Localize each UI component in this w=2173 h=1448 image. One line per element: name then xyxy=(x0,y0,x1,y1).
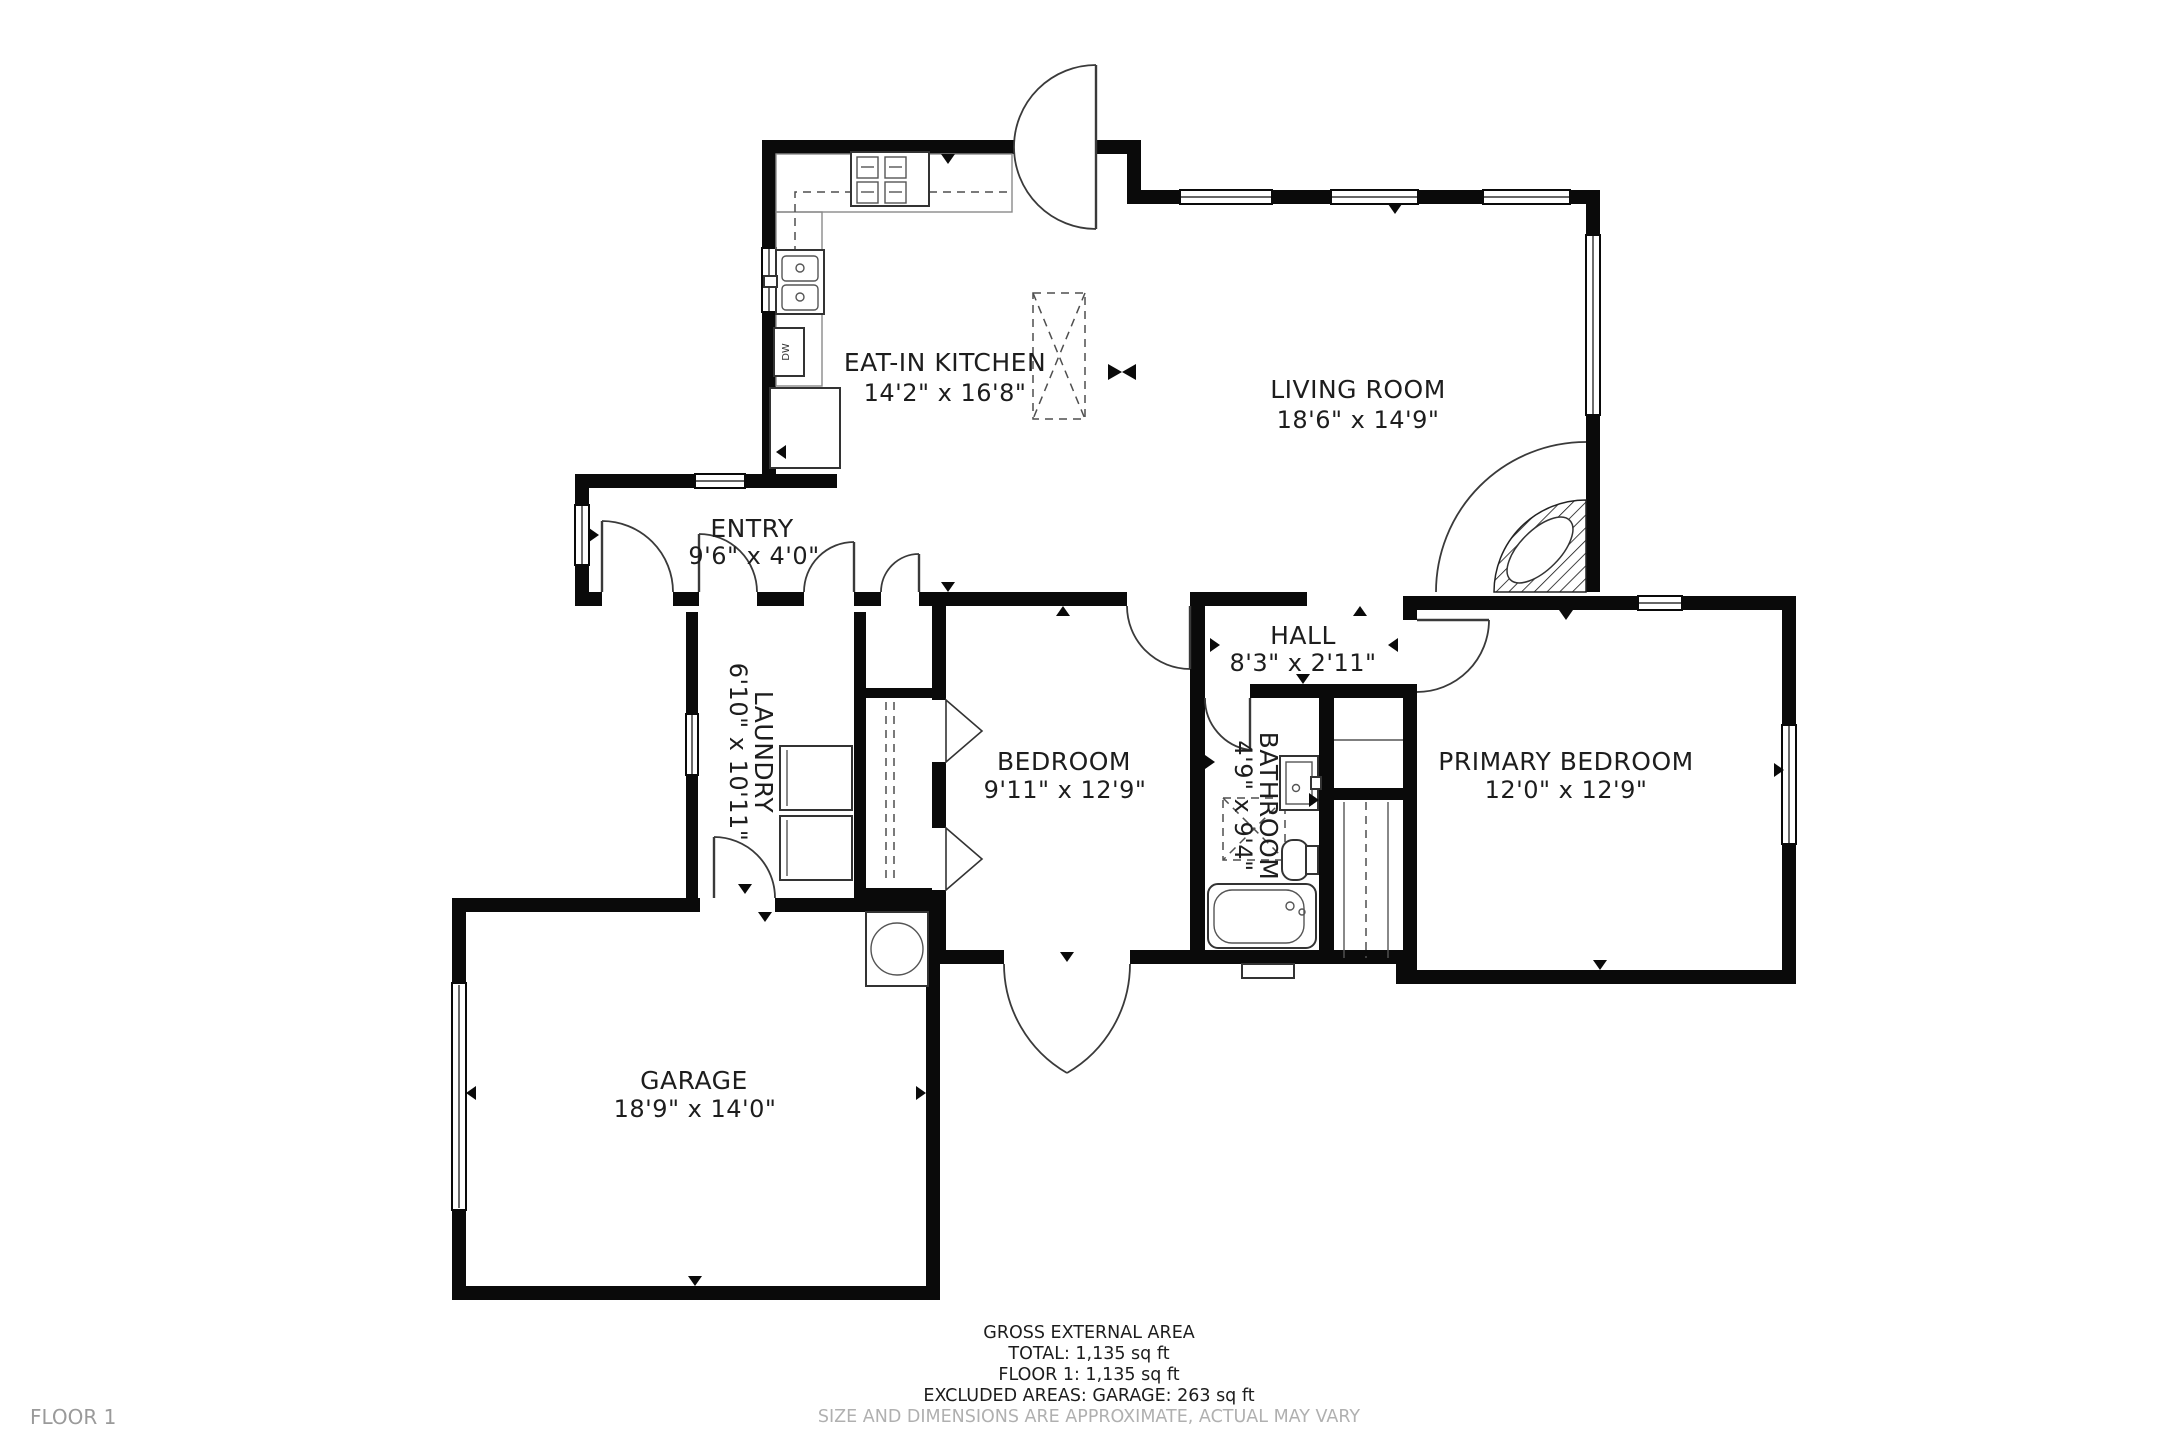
bifold-door-icon xyxy=(946,828,982,890)
room-dimensions: 12'0" x 12'9" xyxy=(1485,776,1648,804)
window xyxy=(1483,190,1570,204)
kitchen-fixtures: DW xyxy=(764,152,1136,468)
garage-door xyxy=(452,983,466,1210)
room-label: EAT-IN KITCHEN xyxy=(844,348,1046,377)
bathtub-icon xyxy=(1208,884,1316,948)
floor-plan-canvas: DW xyxy=(0,0,2173,1448)
room-label: HALL xyxy=(1270,621,1336,650)
door-swing xyxy=(602,521,673,592)
room-dimensions: 6'10" x 10'11" xyxy=(724,663,752,842)
room-eat-in-kitchen: EAT-IN KITCHEN 14'2" x 16'8" xyxy=(844,348,1046,407)
window xyxy=(1180,190,1272,204)
room-label: BATHROOM xyxy=(1254,732,1283,881)
floor-tag: FLOOR 1 xyxy=(30,1405,116,1429)
door-swing xyxy=(881,554,919,592)
svg-text:DW: DW xyxy=(781,343,792,361)
window xyxy=(575,505,589,565)
room-dimensions: 8'3" x 2'11" xyxy=(1229,649,1376,677)
french-doors xyxy=(1004,964,1130,1073)
room-label: GARAGE xyxy=(640,1066,748,1095)
room-dimensions: 4'9" x 9'4" xyxy=(1229,740,1257,871)
room-dimensions: 18'9" x 14'0" xyxy=(614,1095,777,1123)
window xyxy=(686,714,698,775)
room-laundry: LAUNDRY 6'10" x 10'11" xyxy=(724,663,778,842)
room-living-room: LIVING ROOM 18'6" x 14'9" xyxy=(1270,375,1446,434)
dishwasher-icon: DW xyxy=(774,328,804,376)
room-garage: GARAGE 18'9" x 14'0" xyxy=(614,1066,777,1123)
room-hall: HALL 8'3" x 2'11" xyxy=(1229,621,1376,677)
room-label: LIVING ROOM xyxy=(1270,375,1446,404)
room-dimensions: 14'2" x 16'8" xyxy=(864,379,1027,407)
windows xyxy=(452,190,1796,1210)
stove-icon xyxy=(851,152,929,206)
disclaimer: SIZE AND DIMENSIONS ARE APPROXIMATE, ACT… xyxy=(818,1407,1361,1427)
washer-icon xyxy=(780,746,852,810)
area-summary: GROSS EXTERNAL AREA TOTAL: 1,135 sq ft F… xyxy=(818,1323,1361,1427)
room-primary-bedroom: PRIMARY BEDROOM 12'0" x 12'9" xyxy=(1438,747,1693,804)
room-dimensions: 9'6" x 4'0" xyxy=(688,542,819,570)
area-floor1: FLOOR 1: 1,135 sq ft xyxy=(998,1365,1179,1385)
room-label: ENTRY xyxy=(710,514,794,543)
window xyxy=(1586,235,1600,415)
window xyxy=(1331,190,1418,204)
room-label: BEDROOM xyxy=(997,747,1131,776)
floor-plan-page: DW xyxy=(0,0,2173,1448)
window xyxy=(695,474,745,488)
window xyxy=(1638,596,1682,610)
area-title: GROSS EXTERNAL AREA xyxy=(983,1323,1194,1343)
water-heater-icon xyxy=(866,912,928,986)
bifold-door-icon xyxy=(946,700,982,762)
toilet-icon xyxy=(1282,840,1318,880)
fireplace-icon xyxy=(1436,442,1586,594)
room-dimensions: 9'11" x 12'9" xyxy=(984,776,1147,804)
room-dimensions: 18'6" x 14'9" xyxy=(1277,406,1440,434)
room-bedroom: BEDROOM 9'11" x 12'9" xyxy=(984,747,1147,804)
room-entry: ENTRY 9'6" x 4'0" xyxy=(688,514,819,570)
area-excluded: EXCLUDED AREAS: GARAGE: 263 sq ft xyxy=(923,1386,1254,1406)
room-bathroom: BATHROOM 4'9" x 9'4" xyxy=(1229,732,1283,881)
double-acting-door xyxy=(1014,65,1096,229)
dryer-icon xyxy=(780,816,852,880)
area-total: TOTAL: 1,135 sq ft xyxy=(1007,1344,1169,1364)
room-label: PRIMARY BEDROOM xyxy=(1438,747,1693,776)
room-label: LAUNDRY xyxy=(749,691,778,814)
door-swing xyxy=(1417,620,1489,692)
refrigerator-icon xyxy=(770,388,840,468)
laundry-fixtures xyxy=(780,746,852,880)
window xyxy=(1782,725,1796,844)
exterior-step xyxy=(1242,964,1294,978)
bowtie-marker-icon xyxy=(1108,364,1136,380)
upper-cabinet-outline xyxy=(795,192,1012,310)
door-swing xyxy=(1127,606,1190,669)
